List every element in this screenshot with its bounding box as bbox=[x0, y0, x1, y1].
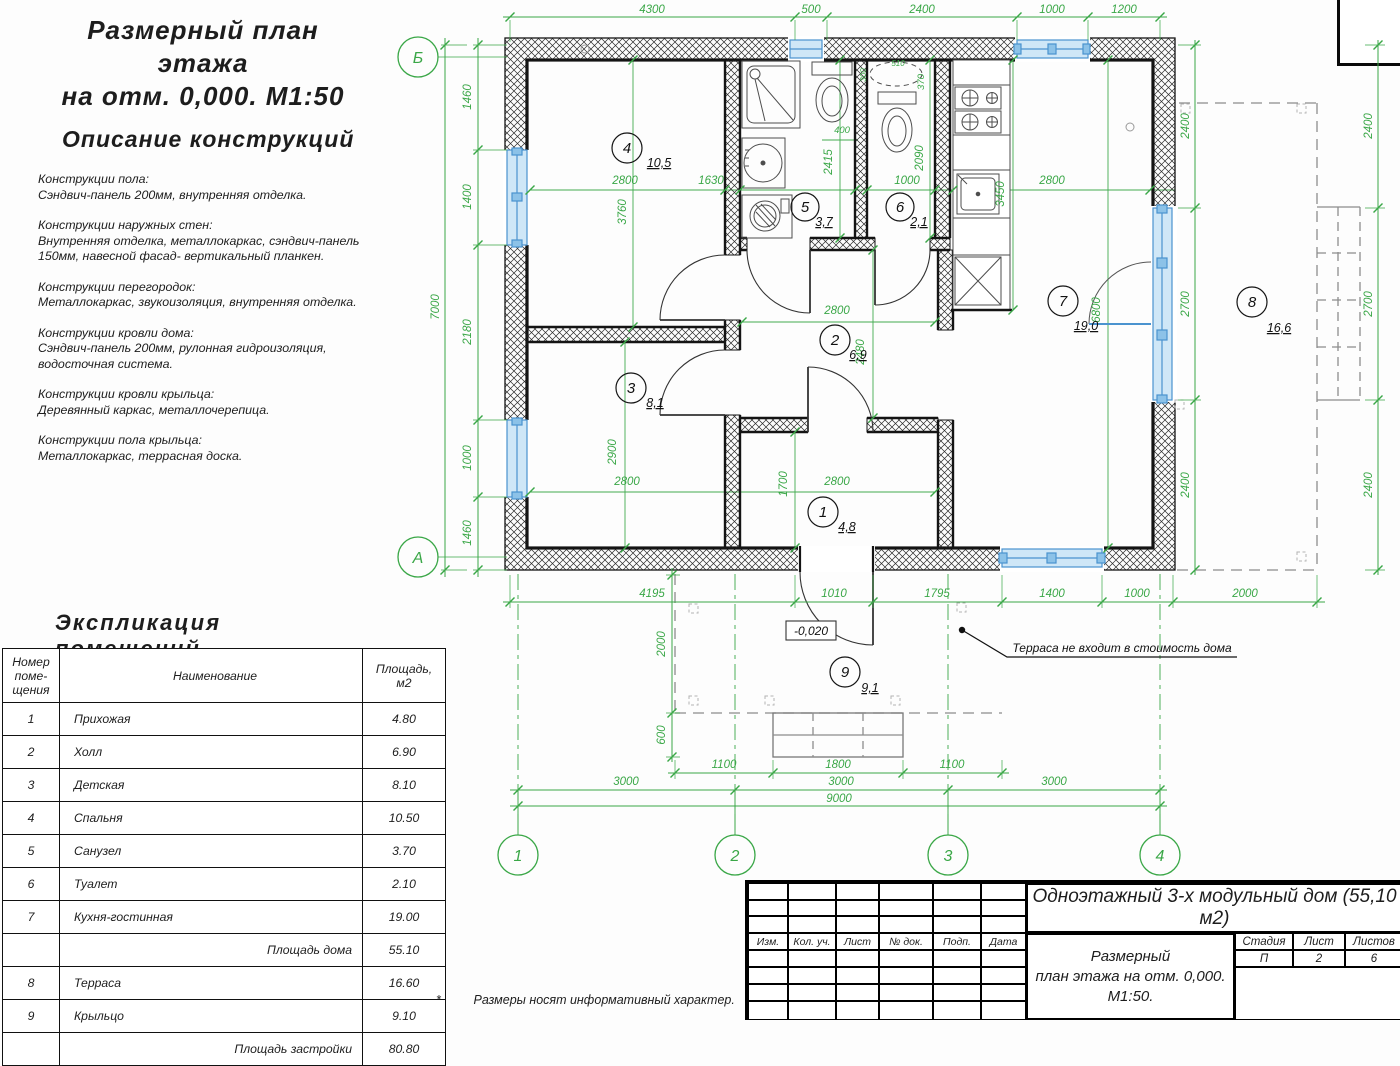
stamp-cell bbox=[836, 916, 879, 933]
stamp-cell bbox=[879, 883, 933, 900]
desc-head: Конструкции пола: bbox=[38, 172, 149, 186]
window-bottom-1400 bbox=[999, 549, 1105, 567]
dim-label: 7000 bbox=[430, 294, 442, 320]
level-value: -0,020 bbox=[794, 624, 828, 638]
table-row: 9Крыльцо9.10 bbox=[3, 1000, 446, 1033]
explication-header-row: Номер поме- щения Наименование Площадь, … bbox=[3, 649, 446, 703]
dim-label: 2800 bbox=[1038, 175, 1065, 187]
door-room4 bbox=[660, 255, 725, 320]
dim-label: 600 bbox=[656, 725, 668, 745]
stamp-col-data: Дата bbox=[981, 933, 1026, 950]
window-left-1000 bbox=[507, 418, 527, 499]
room-area-label: 9,1 bbox=[861, 681, 878, 695]
stamp-cell bbox=[836, 984, 879, 1001]
page-title: Размерный план этажа на отм. 0,000. М1:5… bbox=[38, 14, 368, 113]
table-row: 3Детская8.10 bbox=[3, 769, 446, 802]
table-row-summary: Площадь дома55.10 bbox=[3, 934, 446, 967]
stamp-cell bbox=[981, 1001, 1026, 1020]
footnote-star: * bbox=[436, 993, 470, 1007]
construction-description: Конструкции пола:Сэндвич-панель 200мм, в… bbox=[38, 172, 408, 479]
dim-label: 2700 bbox=[1363, 291, 1375, 318]
interior-walls bbox=[527, 60, 953, 548]
desc-text: Металлокаркас, звукоизоляция, внутренняя… bbox=[38, 295, 357, 309]
desc-head: Конструкции наружных стен: bbox=[38, 218, 213, 232]
room-name: Санузел bbox=[60, 835, 363, 868]
dim-label: 1630 bbox=[698, 175, 724, 187]
dim-label: 1200 bbox=[1111, 4, 1137, 16]
room-number: 3 bbox=[3, 769, 60, 802]
room-name: Терраса bbox=[60, 967, 363, 1000]
dim-label: 1100 bbox=[712, 759, 737, 771]
dim-label: 1460 bbox=[462, 520, 474, 546]
dim-label: 2415 bbox=[823, 149, 835, 176]
porch-outline bbox=[675, 574, 1002, 757]
dim-label: 2400 bbox=[1363, 472, 1375, 499]
axis-label: 3 bbox=[944, 848, 953, 865]
desc-head: Конструкции перегородок: bbox=[38, 280, 195, 294]
room-name: Прихожая bbox=[60, 703, 363, 736]
stamp-cell bbox=[836, 1001, 879, 1020]
desc-section: Конструкции кровли дома:Сэндвич-панель 2… bbox=[38, 326, 408, 373]
stamp-cell bbox=[879, 984, 933, 1001]
fixtures bbox=[742, 60, 1012, 310]
room-marker-number: 3 bbox=[627, 380, 636, 397]
stamp-cell bbox=[981, 883, 1026, 900]
axis-label: 2 bbox=[730, 848, 740, 865]
stamp-col-koluch: Кол. уч. bbox=[788, 933, 836, 950]
room-number: 4 bbox=[3, 802, 60, 835]
room-name: Кухня-гостинная bbox=[60, 901, 363, 934]
room-number: 5 bbox=[3, 835, 60, 868]
stamp-cell bbox=[748, 883, 788, 900]
col-header-name: Наименование bbox=[60, 649, 363, 703]
document-name: Размерный план этажа на отм. 0,000. М1:5… bbox=[1026, 933, 1235, 1020]
room-marker-number: 2 bbox=[830, 332, 840, 349]
dim-label: 4300 bbox=[639, 4, 665, 16]
explication-table: Номер поме- щения Наименование Площадь, … bbox=[2, 648, 446, 1066]
dim-label: 1795 bbox=[924, 588, 950, 600]
dim-label: 1000 bbox=[894, 175, 920, 187]
room-area-label: 2,1 bbox=[909, 215, 927, 229]
stamp-cell bbox=[981, 967, 1026, 984]
dim-label: 3450 bbox=[995, 181, 1007, 207]
window-left-1400 bbox=[507, 148, 527, 247]
dim-label: 1000 bbox=[1039, 4, 1065, 16]
stamp-org-cell bbox=[1235, 967, 1400, 1020]
dim-label: 2700 bbox=[1180, 291, 1192, 318]
project-title: Одноэтажный 3-х модульный дом (55,10 м2) bbox=[1026, 883, 1400, 933]
terrace-note: Терраса не входит в стоимость дома bbox=[959, 627, 1237, 657]
level-mark: -0,020 bbox=[786, 621, 836, 640]
document-name-line: М1:50. bbox=[1035, 987, 1225, 1007]
room-marker-number: 8 bbox=[1248, 294, 1257, 311]
door-room3 bbox=[660, 350, 725, 415]
stamp-col-izm: Изм. bbox=[748, 933, 788, 950]
dim-label: 2400 bbox=[1363, 113, 1375, 140]
stamp-cell bbox=[879, 916, 933, 933]
dim-label: 370 bbox=[916, 73, 927, 90]
room-name: Детская bbox=[60, 769, 363, 802]
document-name-line: Размерный bbox=[1035, 947, 1225, 967]
room-area: 16.60 bbox=[363, 967, 446, 1000]
stamp-cell bbox=[748, 984, 788, 1001]
stamp-col-list: Лист bbox=[836, 933, 879, 950]
footnote-text: Размеры носят информативный характер. bbox=[473, 993, 734, 1007]
stamp-cell bbox=[748, 900, 788, 916]
toilet-wc bbox=[878, 92, 916, 152]
dim-label: 2900 bbox=[607, 439, 619, 466]
desc-text: Деревянный каркас, металлочерепица. bbox=[38, 403, 270, 417]
dim-label: 9000 bbox=[826, 793, 852, 805]
stamp-cell bbox=[933, 950, 981, 967]
room-marker-number: 9 bbox=[841, 664, 850, 681]
summary-label: Площадь дома bbox=[60, 934, 363, 967]
dim-label: 400 bbox=[834, 125, 851, 136]
stamp-cell bbox=[788, 967, 836, 984]
dim-label: 1000 bbox=[1124, 588, 1150, 600]
room-number: 9 bbox=[3, 1000, 60, 1033]
table-row: 7Кухня-гостинная19.00 bbox=[3, 901, 446, 934]
dim-label: 2400 bbox=[1180, 472, 1192, 499]
axis-label: 4 bbox=[1156, 848, 1165, 865]
desc-text: Сэндвич-панель 200мм, рулонная гидроизол… bbox=[38, 341, 327, 371]
dim-label: 300 bbox=[859, 68, 868, 82]
stamp-cell bbox=[836, 883, 879, 900]
col-header-number: Номер поме- щения bbox=[3, 649, 60, 703]
terrace-glazed-door bbox=[1153, 205, 1172, 403]
dim-label: 4195 bbox=[639, 588, 665, 600]
stamp-cell bbox=[748, 1001, 788, 1020]
room-marker-number: 4 bbox=[623, 140, 631, 157]
desc-text: Внутренняя отделка, металлокаркас, сэндв… bbox=[38, 234, 359, 264]
door-bathroom bbox=[747, 250, 810, 313]
dimension-labels: 4300 500 2400 1000 1200 1460 1400 2180 1… bbox=[430, 4, 1375, 805]
title-block: Изм. Кол. уч. Лист № док. Подп. Дата Одн… bbox=[745, 880, 1400, 1020]
desc-section: Конструкции наружных стен:Внутренняя отд… bbox=[38, 218, 408, 265]
sink-bathroom bbox=[742, 138, 785, 188]
room-area-label: 16,6 bbox=[1267, 321, 1291, 335]
dim-label: 1800 bbox=[825, 759, 851, 771]
dim-label: 510 bbox=[891, 59, 905, 68]
desc-text: Металлокаркас, террасная доска. bbox=[38, 449, 242, 463]
room-area-label: 3,7 bbox=[815, 215, 833, 229]
dim-label: 2800 bbox=[613, 476, 640, 488]
stamp-cell bbox=[879, 967, 933, 984]
stamp-cell bbox=[933, 1001, 981, 1020]
desc-head: Конструкции кровли дома: bbox=[38, 326, 194, 340]
summary-area: 80.80 bbox=[363, 1033, 446, 1066]
stamp-cell bbox=[836, 900, 879, 916]
dim-label: 3000 bbox=[828, 776, 854, 788]
stamp-cell bbox=[836, 967, 879, 984]
stamp-cell bbox=[748, 967, 788, 984]
stamp-cell bbox=[788, 900, 836, 916]
document-name-line: план этажа на отм. 0,000. bbox=[1035, 967, 1225, 987]
desc-section: Конструкции пола крыльца:Металлокаркас, … bbox=[38, 433, 408, 464]
room-area-label: 8,1 bbox=[646, 396, 663, 410]
desc-head: Конструкции пола крыльца: bbox=[38, 433, 202, 447]
desc-section: Конструкции кровли крыльца:Деревянный ка… bbox=[38, 387, 408, 418]
stamp-cell bbox=[879, 950, 933, 967]
window-top-1000 bbox=[1014, 40, 1090, 58]
room-marker-number: 6 bbox=[896, 199, 905, 216]
door-hall-room1 bbox=[808, 367, 873, 432]
stamp-cell bbox=[879, 1001, 933, 1020]
dim-label: 500 bbox=[801, 4, 821, 16]
stamp-sheet-header: Лист bbox=[1293, 933, 1345, 950]
table-row: 8Терраса16.60 bbox=[3, 967, 446, 1000]
room-number bbox=[3, 934, 60, 967]
stamp-cell bbox=[981, 950, 1026, 967]
stamp-sheets-value: 6 bbox=[1345, 950, 1400, 967]
stamp-cell bbox=[981, 900, 1026, 916]
dim-label: 3000 bbox=[1041, 776, 1067, 788]
table-row: 5Санузел3.70 bbox=[3, 835, 446, 868]
terrace-note-text: Терраса не входит в стоимость дома bbox=[1012, 641, 1232, 655]
stamp-cell bbox=[836, 950, 879, 967]
stamp-cell bbox=[981, 984, 1026, 1001]
stamp-col-podp: Подп. bbox=[933, 933, 981, 950]
stamp-cell bbox=[788, 950, 836, 967]
stamp-stage-value: П bbox=[1235, 950, 1293, 967]
stamp-sheets-header: Листов bbox=[1345, 933, 1400, 950]
stamp-cell bbox=[788, 984, 836, 1001]
room-name: Туалет bbox=[60, 868, 363, 901]
table-row: 4Спальня10.50 bbox=[3, 802, 446, 835]
room-marker-number: 7 bbox=[1059, 293, 1068, 310]
room-number: 6 bbox=[3, 868, 60, 901]
stamp-sheet-value: 2 bbox=[1293, 950, 1345, 967]
shower-cabin bbox=[742, 61, 800, 128]
terrace-outline bbox=[1177, 103, 1360, 570]
dim-label: 1700 bbox=[778, 471, 790, 497]
room-area-label: 19,0 bbox=[1074, 319, 1098, 333]
room-area: 9.10 bbox=[363, 1000, 446, 1033]
stamp-cell bbox=[788, 916, 836, 933]
room-name: Холл bbox=[60, 736, 363, 769]
stamp-cell bbox=[879, 900, 933, 916]
axis-label: А bbox=[412, 550, 424, 567]
washing-machine bbox=[742, 195, 792, 238]
room-marker-number: 5 bbox=[801, 199, 810, 216]
dim-label: 3760 bbox=[617, 199, 629, 225]
room-area-label: 6,9 bbox=[849, 348, 866, 362]
stamp-cell bbox=[788, 1001, 836, 1020]
summary-area: 55.10 bbox=[363, 934, 446, 967]
stamp-cell bbox=[933, 967, 981, 984]
desc-head: Конструкции кровли крыльца: bbox=[38, 387, 214, 401]
dim-label: 3000 bbox=[613, 776, 639, 788]
room-marker-number: 1 bbox=[819, 504, 827, 521]
page-title-line2: на отм. 0,000. М1:50 bbox=[38, 80, 368, 113]
table-row: 1Прихожая4.80 bbox=[3, 703, 446, 736]
dim-label: 1460 bbox=[462, 84, 474, 110]
dim-label: 2180 bbox=[462, 319, 474, 346]
floor-plan: 4300 500 2400 1000 1200 1460 1400 2180 1… bbox=[395, 0, 1400, 935]
room-number: 8 bbox=[3, 967, 60, 1000]
dim-label: 2090 bbox=[914, 145, 926, 172]
door-toilet bbox=[875, 250, 930, 305]
room-area-label: 10,5 bbox=[647, 156, 671, 170]
dim-label: 2400 bbox=[1180, 113, 1192, 140]
desc-section: Конструкции перегородок:Металлокаркас, з… bbox=[38, 280, 408, 311]
dim-label: 1010 bbox=[821, 588, 847, 600]
dim-label: 2000 bbox=[656, 631, 668, 658]
drawing-sheet: { "colors":{"green":"#3aa747","blue":"#4… bbox=[0, 0, 1400, 1017]
dim-label: 2800 bbox=[823, 305, 850, 317]
desc-text: Сэндвич-панель 200мм, внутренняя отделка… bbox=[38, 188, 306, 202]
room-name: Крыльцо bbox=[60, 1000, 363, 1033]
stamp-cell bbox=[788, 883, 836, 900]
summary-label: Площадь застройки bbox=[60, 1033, 363, 1066]
axis-label: 1 bbox=[514, 848, 523, 865]
room-area-label: 4,8 bbox=[838, 520, 855, 534]
dim-label: 1100 bbox=[940, 759, 965, 771]
page-title-line1: Размерный план этажа bbox=[38, 14, 368, 80]
window-top-500 bbox=[790, 40, 822, 58]
dim-label: 1000 bbox=[462, 445, 474, 471]
stamp-stage-header: Стадия bbox=[1235, 933, 1293, 950]
table-row: 6Туалет2.10 bbox=[3, 868, 446, 901]
table-row-summary: Площадь застройки80.80 bbox=[3, 1033, 446, 1066]
stamp-cell bbox=[933, 883, 981, 900]
room-number: 1 bbox=[3, 703, 60, 736]
dim-label: 2800 bbox=[823, 476, 850, 488]
room-number bbox=[3, 1033, 60, 1066]
stamp-cell bbox=[933, 984, 981, 1001]
stamp-cell bbox=[748, 950, 788, 967]
room-number: 7 bbox=[3, 901, 60, 934]
axis-label: Б bbox=[413, 50, 423, 67]
stamp-cell bbox=[981, 916, 1026, 933]
stamp-cell bbox=[748, 916, 788, 933]
desc-section: Конструкции пола:Сэндвич-панель 200мм, в… bbox=[38, 172, 408, 203]
dim-label: 2000 bbox=[1231, 588, 1258, 600]
room-name: Спальня bbox=[60, 802, 363, 835]
stamp-cell bbox=[933, 900, 981, 916]
construction-description-heading: Описание конструкций bbox=[62, 126, 362, 153]
dim-label: 2400 bbox=[908, 4, 935, 16]
toilet-bathroom bbox=[812, 62, 852, 122]
table-row: 2Холл6.90 bbox=[3, 736, 446, 769]
dim-label: 2800 bbox=[611, 175, 638, 187]
room-number: 2 bbox=[3, 736, 60, 769]
stamp-col-ndok: № док. bbox=[879, 933, 933, 950]
dim-label: 1400 bbox=[1039, 588, 1065, 600]
dim-label: 1400 bbox=[462, 184, 474, 210]
stamp-cell bbox=[933, 916, 981, 933]
